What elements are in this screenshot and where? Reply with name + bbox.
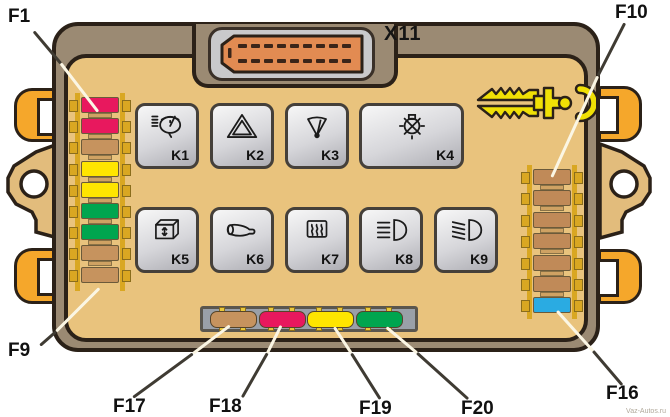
label-f19: F19	[359, 398, 392, 417]
fuse-f5	[81, 182, 119, 198]
relay-k5: K5	[135, 207, 199, 273]
fuse-f17	[210, 311, 257, 328]
windshield-wiper-relay-icon	[298, 111, 336, 141]
hazard-warning-relay-icon	[223, 111, 261, 141]
relay-k1: K1	[135, 103, 199, 169]
fuse-slot-f20	[356, 307, 401, 331]
fuse-f3	[81, 139, 119, 155]
fuse-f15	[533, 276, 571, 292]
relay-label: K1	[171, 147, 189, 163]
fuse-f18	[259, 311, 306, 328]
right-mount-ear	[596, 140, 656, 240]
relay-k4: K4	[359, 103, 464, 169]
fuse-link	[540, 292, 564, 297]
headlight-washer-relay-icon	[148, 111, 186, 141]
relay-k7: K7	[285, 207, 349, 273]
right-fuse-column	[527, 165, 577, 319]
fuse-f12	[533, 212, 571, 228]
fuse-slot-f19	[307, 307, 352, 331]
leader-line-f17	[132, 352, 193, 398]
relay-label: K6	[246, 251, 264, 267]
lamp-check-relay-icon	[393, 111, 431, 141]
relay-label: K7	[321, 251, 339, 267]
fuse-f19	[307, 311, 354, 328]
leader-line-f10	[597, 23, 626, 77]
watermark: Vaz-Autos.ru	[626, 408, 666, 415]
fuse-link	[540, 249, 564, 254]
label-f1: F1	[8, 6, 30, 28]
fuse-link	[540, 228, 564, 233]
fuse-link	[540, 185, 564, 190]
relay-label: K5	[171, 251, 189, 267]
fuse-f6	[81, 203, 119, 219]
fuse-f7	[81, 224, 119, 240]
fuse-f4	[81, 161, 119, 177]
label-f10: F10	[615, 2, 648, 24]
low-beam-relay-icon	[447, 215, 485, 245]
fuse-link	[88, 261, 112, 266]
label-f16: F16	[606, 383, 639, 405]
leader-line-f18	[241, 353, 268, 398]
relay-k9: K9	[434, 207, 498, 273]
right-top-mount-clip	[598, 86, 642, 142]
leader-line-f20	[416, 352, 469, 400]
fuse-slot-f17	[210, 307, 255, 331]
left-fuse-column	[75, 93, 125, 291]
label-f17: F17	[113, 396, 146, 417]
power-window-relay-icon	[148, 215, 186, 245]
relay-label: K3	[321, 147, 339, 163]
right-bottom-mount-clip	[598, 249, 642, 304]
relay-label: K9	[470, 251, 488, 267]
x11-connector	[218, 33, 366, 75]
x11-connector-label: X11	[384, 23, 421, 46]
relay-label: K2	[246, 147, 264, 163]
fuse-box-diagram: X11 K1K2K3K4K5K6K7K8K9 F1F10F9F16F17F18F…	[0, 0, 670, 417]
leader-line-f19	[350, 353, 381, 400]
high-beam-relay-icon	[372, 215, 410, 245]
relay-k6: K6	[210, 207, 274, 273]
fuse-link	[88, 155, 112, 160]
relay-label: K4	[436, 147, 454, 163]
fuse-f9	[81, 267, 119, 283]
fuse-f13	[533, 233, 571, 249]
label-f20: F20	[461, 398, 494, 417]
label-f9: F9	[8, 340, 30, 362]
label-f18: F18	[209, 396, 242, 417]
fuse-link	[540, 271, 564, 276]
relay-k3: K3	[285, 103, 349, 169]
fuse-link	[540, 206, 564, 211]
fuse-f11	[533, 190, 571, 206]
fuse-f2	[81, 118, 119, 134]
fuse-f8	[81, 245, 119, 261]
mount-hole	[611, 171, 637, 197]
fuse-f14	[533, 255, 571, 271]
leader-line-f16	[592, 350, 623, 386]
relay-label: K8	[395, 251, 413, 267]
fuse-f20	[356, 311, 403, 328]
relay-k2: K2	[210, 103, 274, 169]
rear-defogger-relay-icon	[298, 215, 336, 245]
relay-k8: K8	[359, 207, 423, 273]
fuse-link	[88, 177, 112, 182]
fuse-f16	[533, 297, 571, 313]
mount-hole	[21, 171, 47, 197]
horn-relay-icon	[223, 215, 261, 245]
